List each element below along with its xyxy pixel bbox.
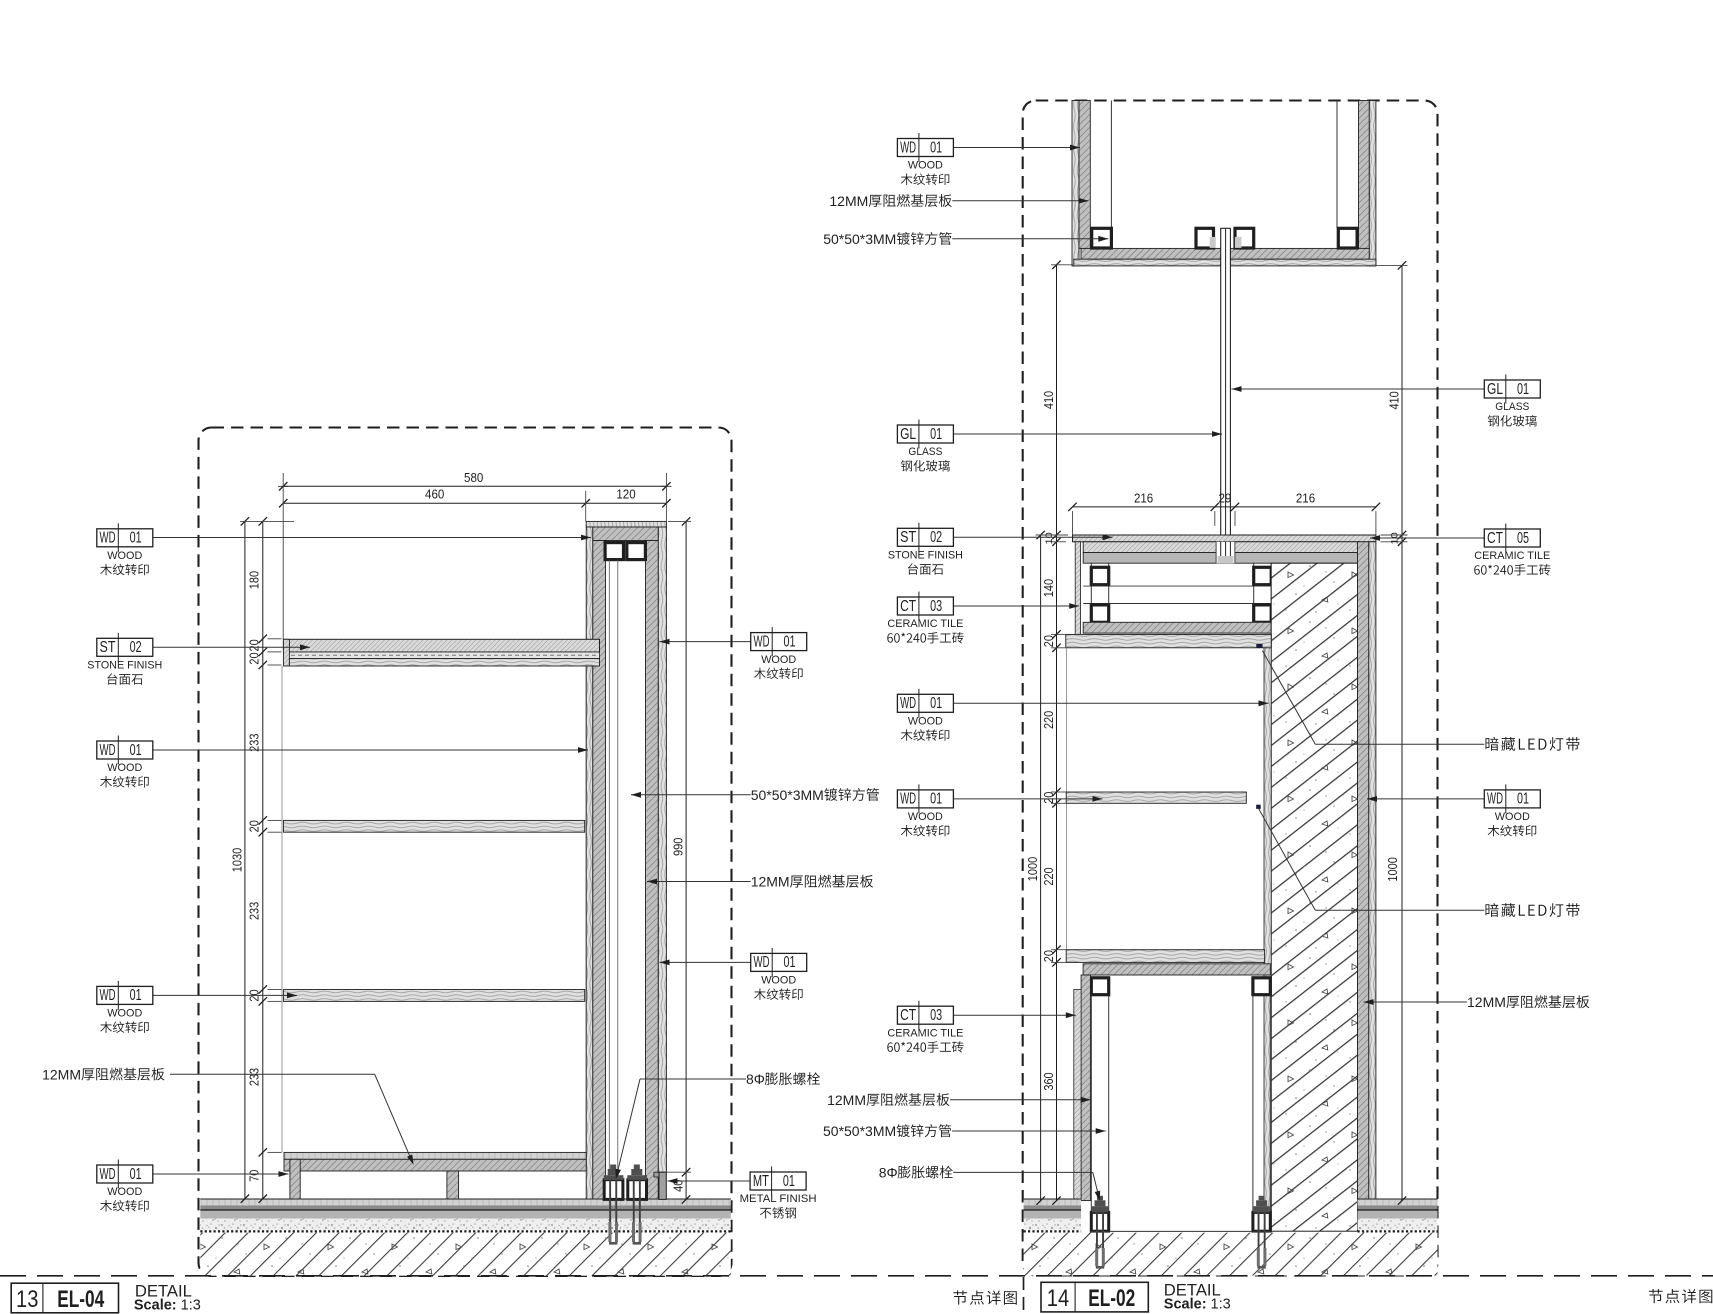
svg-text:01: 01 bbox=[930, 791, 942, 808]
svg-text:01: 01 bbox=[930, 695, 942, 712]
svg-text:CERAMIC TILE: CERAMIC TILE bbox=[887, 1027, 963, 1039]
svg-text:ST: ST bbox=[100, 639, 116, 656]
svg-text:GLASS: GLASS bbox=[1495, 401, 1529, 413]
svg-text:WOOD: WOOD bbox=[761, 975, 796, 987]
svg-text:WD: WD bbox=[100, 530, 116, 547]
svg-text:13: 13 bbox=[16, 1286, 38, 1313]
svg-text:220: 220 bbox=[1042, 711, 1056, 729]
svg-text:WOOD: WOOD bbox=[107, 762, 142, 774]
svg-text:12MM: 12MM bbox=[1467, 994, 1506, 1010]
svg-text:20: 20 bbox=[1042, 792, 1056, 804]
svg-text:WOOD: WOOD bbox=[107, 550, 142, 562]
svg-text:20: 20 bbox=[247, 820, 261, 832]
svg-text:CT: CT bbox=[900, 598, 916, 615]
svg-text:10: 10 bbox=[1044, 532, 1054, 544]
svg-text:216: 216 bbox=[1296, 492, 1315, 506]
svg-text:12MM: 12MM bbox=[829, 193, 868, 209]
svg-text:WD: WD bbox=[900, 139, 916, 156]
svg-text:01: 01 bbox=[130, 530, 142, 547]
svg-text:50*50*3MM: 50*50*3MM bbox=[823, 1123, 896, 1139]
svg-text:WD: WD bbox=[900, 791, 916, 808]
svg-text:CT: CT bbox=[1487, 530, 1503, 547]
svg-text:990: 990 bbox=[672, 838, 686, 856]
svg-text:MT: MT bbox=[753, 1173, 769, 1190]
svg-text:03: 03 bbox=[930, 598, 942, 615]
svg-text:233: 233 bbox=[247, 734, 261, 752]
svg-text:20: 20 bbox=[247, 652, 261, 664]
svg-text:GL: GL bbox=[900, 426, 916, 443]
svg-text:WD: WD bbox=[100, 1166, 116, 1183]
svg-text:01: 01 bbox=[784, 954, 796, 971]
svg-text:460: 460 bbox=[425, 488, 444, 502]
svg-text:01: 01 bbox=[130, 1166, 142, 1183]
svg-text:20: 20 bbox=[1042, 635, 1056, 647]
svg-text:CT: CT bbox=[900, 1007, 916, 1024]
svg-text:WOOD: WOOD bbox=[908, 160, 943, 172]
svg-text:120: 120 bbox=[616, 488, 635, 502]
svg-text:WD: WD bbox=[754, 954, 770, 971]
svg-text:12MM: 12MM bbox=[751, 874, 790, 890]
svg-text:01: 01 bbox=[130, 987, 142, 1004]
svg-text:29: 29 bbox=[1218, 492, 1231, 506]
svg-text:12MM: 12MM bbox=[827, 1092, 866, 1108]
svg-text:14: 14 bbox=[1047, 1285, 1069, 1312]
svg-text:01: 01 bbox=[930, 139, 942, 156]
svg-text:12MM: 12MM bbox=[42, 1066, 81, 1082]
svg-text:WOOD: WOOD bbox=[107, 1186, 142, 1198]
svg-text:WD: WD bbox=[100, 987, 116, 1004]
svg-text:EL-02: EL-02 bbox=[1088, 1285, 1135, 1312]
svg-text:STONE FINISH: STONE FINISH bbox=[87, 660, 162, 672]
svg-text:01: 01 bbox=[784, 633, 796, 650]
svg-text:580: 580 bbox=[464, 471, 483, 485]
svg-text:METAL FINISH: METAL FINISH bbox=[740, 1193, 817, 1205]
svg-text:Scale: 1:3: Scale: 1:3 bbox=[134, 1298, 201, 1314]
svg-text:216: 216 bbox=[1134, 492, 1153, 506]
svg-text:1000: 1000 bbox=[1386, 857, 1400, 881]
svg-text:EL-04: EL-04 bbox=[57, 1286, 104, 1313]
svg-text:8Φ: 8Φ bbox=[746, 1071, 765, 1087]
svg-text:70: 70 bbox=[247, 1170, 261, 1182]
svg-text:01: 01 bbox=[1517, 791, 1529, 808]
svg-text:20: 20 bbox=[247, 639, 261, 651]
svg-text:STONE FINISH: STONE FINISH bbox=[888, 550, 963, 562]
svg-text:05: 05 bbox=[1517, 530, 1529, 547]
svg-text:220: 220 bbox=[1042, 867, 1056, 885]
svg-text:WOOD: WOOD bbox=[1495, 811, 1530, 823]
svg-text:WD: WD bbox=[100, 742, 116, 759]
svg-text:1030: 1030 bbox=[231, 848, 245, 872]
svg-text:GL: GL bbox=[1487, 381, 1503, 398]
svg-text:WOOD: WOOD bbox=[908, 811, 943, 823]
svg-text:8Φ: 8Φ bbox=[879, 1164, 898, 1180]
svg-text:GLASS: GLASS bbox=[908, 446, 942, 458]
svg-text:CERAMIC TILE: CERAMIC TILE bbox=[887, 618, 963, 630]
svg-text:WOOD: WOOD bbox=[761, 654, 796, 666]
svg-text:180: 180 bbox=[247, 571, 261, 589]
svg-text:20: 20 bbox=[1042, 950, 1056, 962]
svg-text:233: 233 bbox=[247, 1068, 261, 1086]
svg-text:360: 360 bbox=[1042, 1072, 1056, 1090]
svg-text:ST: ST bbox=[900, 529, 916, 546]
svg-text:02: 02 bbox=[930, 529, 942, 546]
svg-text:WOOD: WOOD bbox=[908, 716, 943, 728]
svg-text:410: 410 bbox=[1042, 391, 1056, 409]
svg-text:WOOD: WOOD bbox=[107, 1008, 142, 1020]
svg-text:WD: WD bbox=[900, 695, 916, 712]
svg-text:410: 410 bbox=[1388, 391, 1402, 409]
svg-text:WD: WD bbox=[1487, 791, 1503, 808]
svg-text:233: 233 bbox=[247, 902, 261, 920]
svg-text:CERAMIC TILE: CERAMIC TILE bbox=[1474, 550, 1550, 562]
svg-text:03: 03 bbox=[930, 1007, 942, 1024]
svg-text:140: 140 bbox=[1042, 579, 1056, 597]
svg-text:WD: WD bbox=[754, 633, 770, 650]
svg-text:50*50*3MM: 50*50*3MM bbox=[751, 787, 824, 803]
svg-text:1000: 1000 bbox=[1026, 857, 1040, 881]
svg-text:01: 01 bbox=[130, 742, 142, 759]
svg-text:Scale: 1:3: Scale: 1:3 bbox=[1164, 1297, 1231, 1313]
svg-text:02: 02 bbox=[130, 639, 142, 656]
svg-text:01: 01 bbox=[1517, 381, 1529, 398]
svg-text:01: 01 bbox=[783, 1173, 795, 1190]
svg-text:01: 01 bbox=[930, 426, 942, 443]
svg-text:50*50*3MM: 50*50*3MM bbox=[823, 231, 896, 247]
